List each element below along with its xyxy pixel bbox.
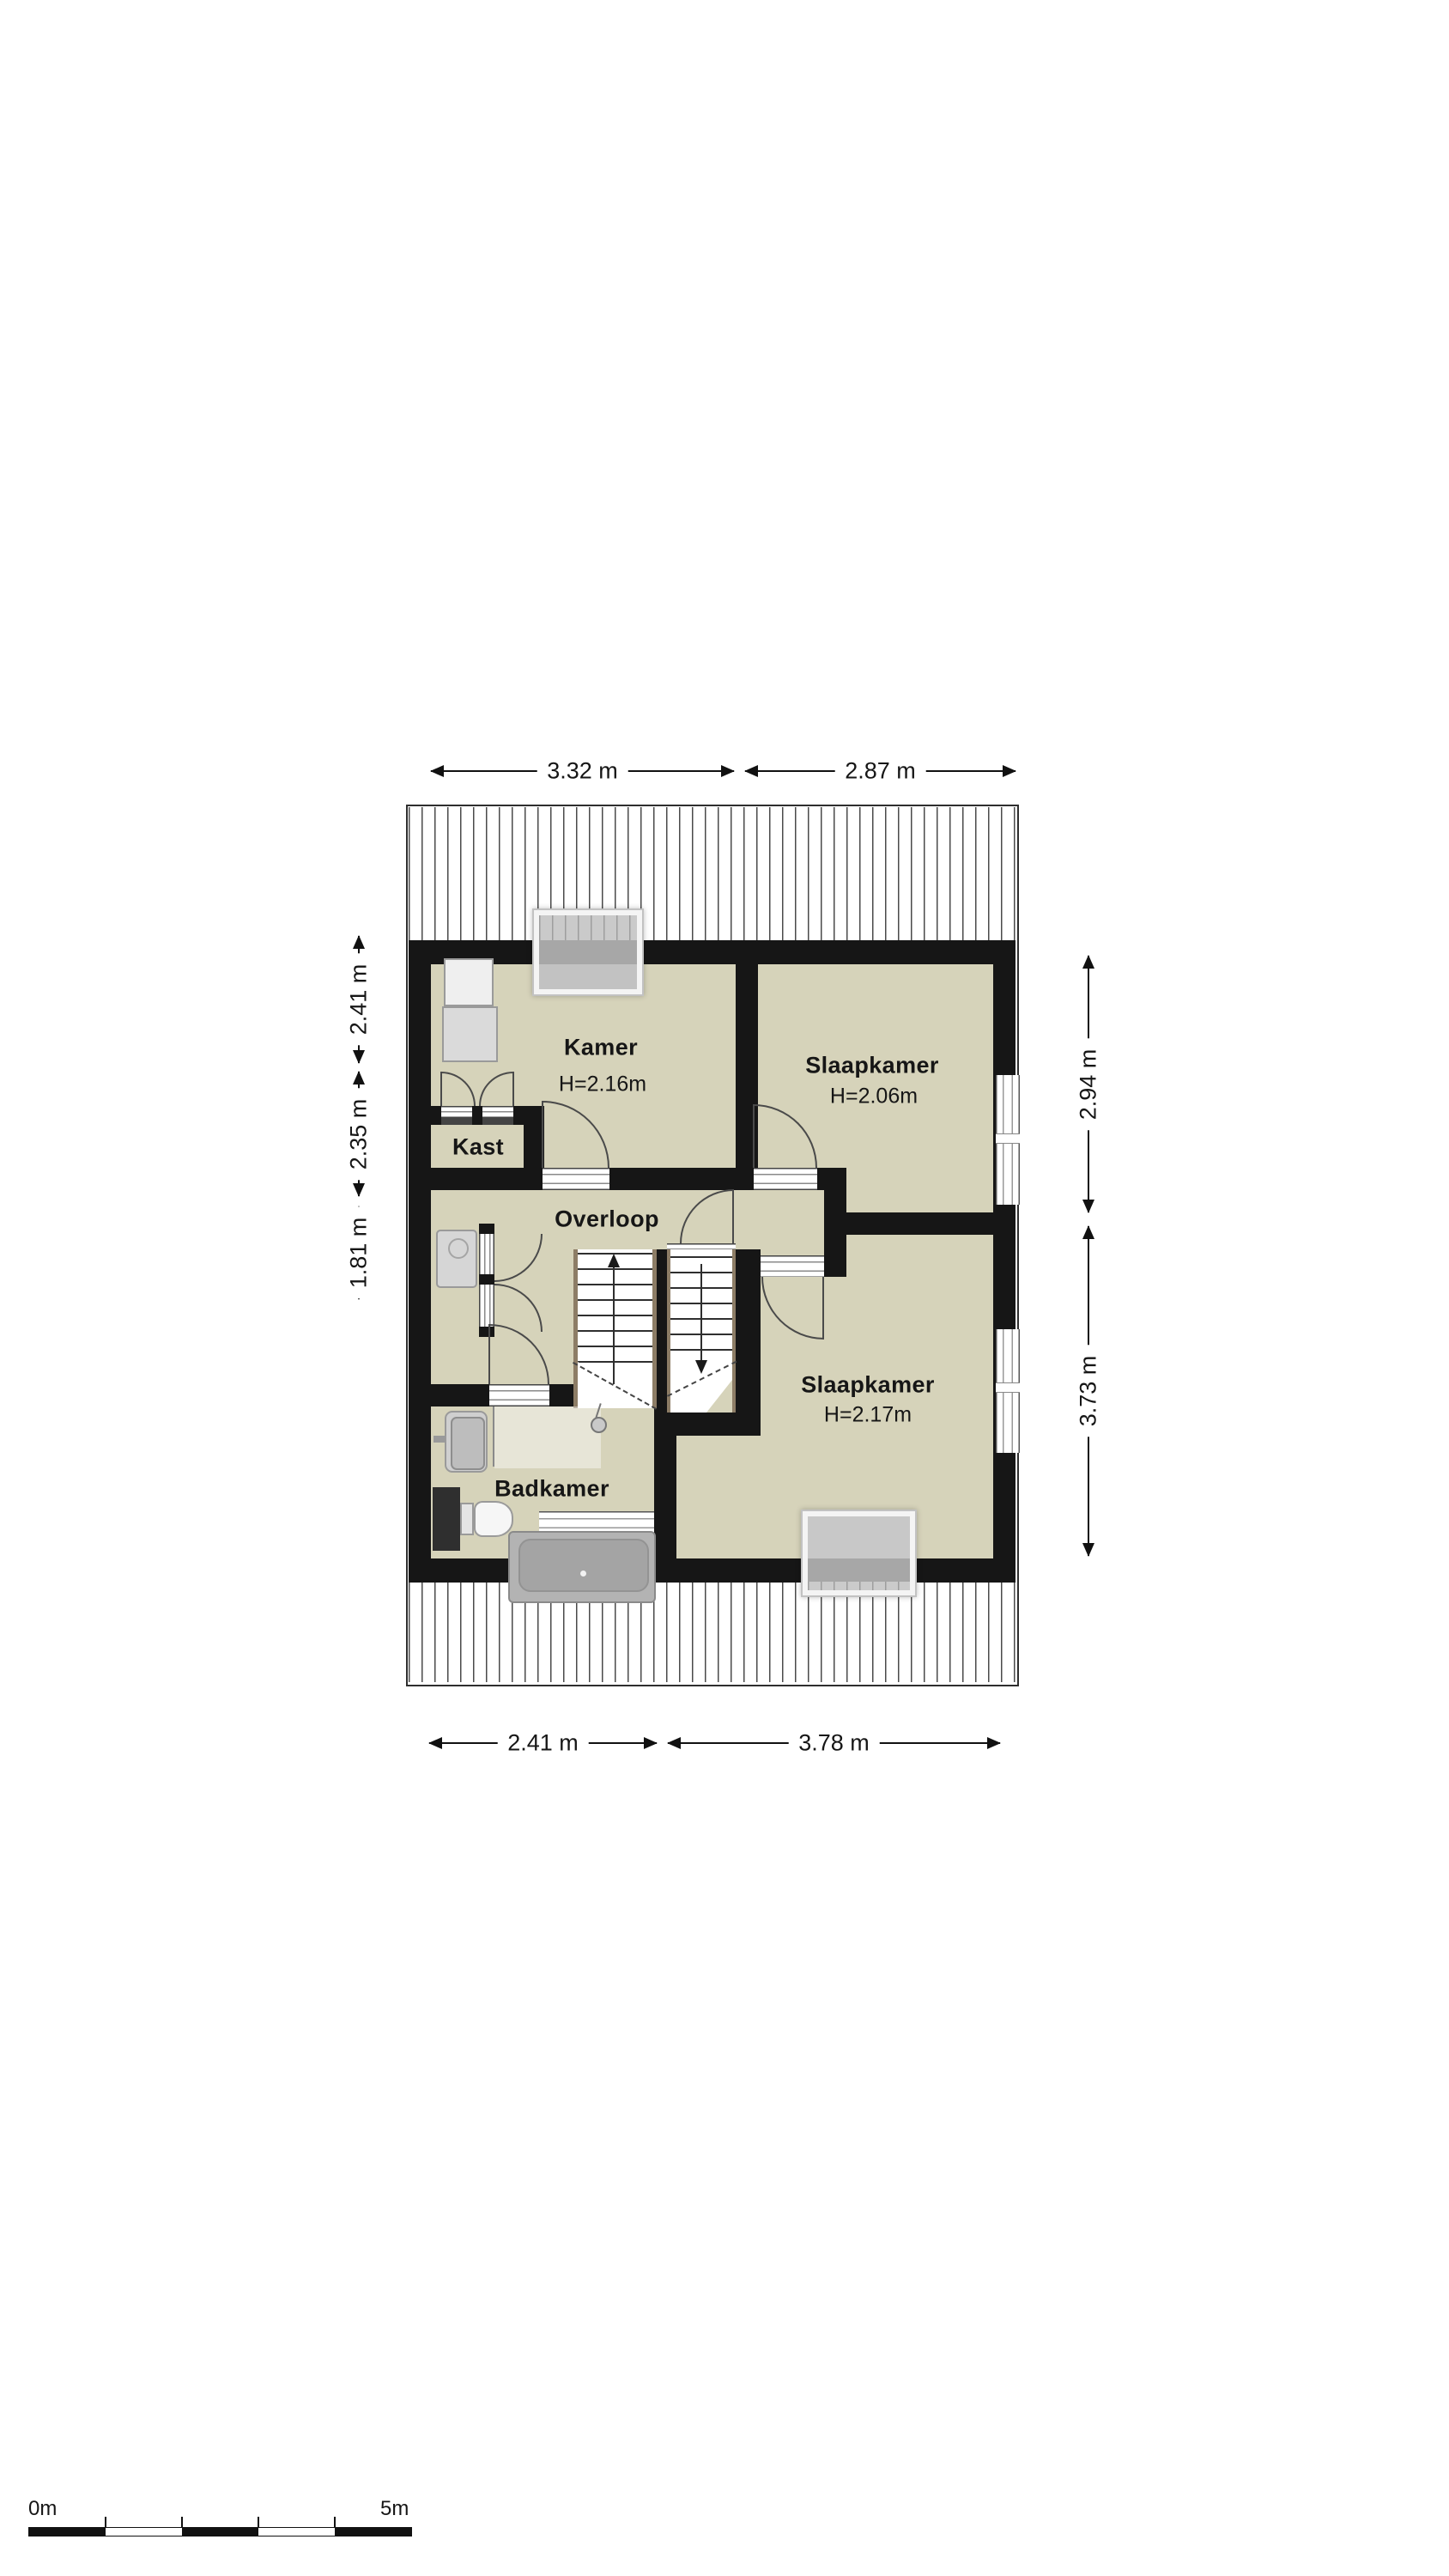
closet-post-top [479,1224,494,1234]
wall-overloop-badkamer-a [431,1384,489,1406]
dim-left-1: 2.41 m [358,936,360,1063]
wall-kamer-overloop-b [609,1168,754,1190]
scale-seg-1 [29,2528,106,2536]
scale-seg-2 [106,2528,182,2536]
roof-hatch-bottom [409,1583,1016,1682]
window-transom-1 [996,1133,1020,1144]
dim-left-3-label: 1.81 m [346,1207,373,1299]
stairs-down-line [700,1264,702,1360]
skylight-kamer-glass-top [539,915,637,940]
toilet-bowl [474,1501,513,1537]
wall-left [409,940,431,1583]
dim-right-1-label: 2.94 m [1076,1038,1102,1130]
stairs-up-arrow-icon [608,1254,620,1267]
stairs-down-arrow-icon [695,1360,707,1374]
door-leaf-slaapkamer-onder [822,1277,824,1340]
scale-tick-4 [334,2517,336,2527]
wall-top [409,940,1016,964]
room-label-kast: Kast [452,1134,504,1161]
stairs-down-landing [706,1380,732,1413]
scale-bar-label-end: 5m [380,2497,409,2521]
skylight-slaapkamer-glass-top [808,1516,910,1558]
door-sill-slaapkamer-onder [761,1255,824,1277]
room-label-overloop: Overloop [555,1206,659,1233]
door-sill-kamer [543,1168,609,1190]
sink-tap-icon [433,1436,446,1443]
dim-right-2: 3.73 m [1088,1226,1089,1556]
arrow-down-icon [1082,1543,1094,1557]
dim-right-1: 2.94 m [1088,956,1089,1212]
arrow-down-icon [353,1183,365,1197]
scale-tick-3 [258,2517,259,2527]
wall-bottom [409,1558,1016,1583]
dim-top-left-label: 3.32 m [537,758,628,785]
kast-door-post-left [431,1106,441,1125]
shower-head-icon [591,1417,607,1433]
dim-bottom-right-label: 3.78 m [788,1730,880,1757]
skylight-slaapkamer [801,1510,917,1597]
shower-area [494,1406,601,1468]
wall-slaapkamer-boven-onder [824,1212,1016,1235]
scale-tick-2 [181,2517,183,2527]
floorplan-page: Kamer H=2.16m Slaapkamer H=2.06m Kast Ov… [0,0,1449,2576]
arrow-left-icon [744,765,758,777]
scale-tick-1 [105,2517,106,2527]
bathtub-basin [518,1539,649,1592]
arrow-right-icon [721,765,735,777]
scale-bar [28,2527,412,2537]
arrow-up-icon [1082,1225,1094,1239]
dim-bottom-left: 2.41 m [429,1742,657,1744]
door-leaf-stairs [732,1189,734,1243]
kast-door-leaf-right [512,1072,514,1106]
kast-door-leaf-left [440,1072,442,1106]
dim-left-2-label: 2.35 m [346,1088,373,1180]
door-sill-slaapkamer-boven [754,1168,817,1190]
dim-bottom-right: 3.78 m [668,1742,1000,1744]
shower-screen [493,1406,494,1467]
arrow-right-icon [644,1737,658,1749]
arrow-up-icon [1082,955,1094,969]
scale-seg-5 [335,2528,411,2536]
room-height-slaapkamer-onder: H=2.17m [824,1403,912,1428]
dim-left-3: 1.81 m [358,1206,360,1299]
skylight-kamer-glass-mid [539,940,637,964]
arrow-down-icon [353,1050,365,1064]
wall-between-flights [657,1249,667,1388]
room-label-slaapkamer-onder: Slaapkamer [801,1372,935,1399]
arrow-left-icon [430,765,444,777]
wall-right [993,940,1016,1583]
roof-hatch-top [409,807,1016,940]
dim-top-right-label: 2.87 m [834,758,926,785]
window-transom-2 [996,1382,1020,1393]
wall-stairs-right [736,1249,761,1436]
door-leaf-kamer [542,1101,543,1168]
skylight-kamer-glass-bottom [539,964,637,989]
dim-top-right: 2.87 m [745,770,1016,772]
scale-seg-4 [258,2528,335,2536]
dim-right-2-label: 3.73 m [1076,1346,1102,1437]
room-label-badkamer: Badkamer [494,1476,609,1503]
kast-door-post-right [513,1106,524,1125]
arrow-up-icon [353,935,365,949]
room-label-kamer: Kamer [564,1035,638,1061]
dim-top-left: 3.32 m [431,770,734,772]
stairs-up-line [613,1267,615,1384]
door-leaf-slaapkamer-boven [753,1104,755,1168]
sink-basin [451,1417,485,1470]
bathroom-panel [433,1487,460,1551]
scale-bar-label-start: 0m [28,2497,57,2521]
skylight-slaapkamer-glass-bottom [808,1582,910,1590]
bathroom-sink [445,1411,488,1473]
wall-under-stairs [654,1413,758,1436]
door-leaf-badkamer [488,1324,490,1384]
wardrobe-bottom [442,1006,498,1062]
dim-bottom-left-label: 2.41 m [497,1730,589,1757]
room-height-kamer: H=2.16m [559,1072,646,1097]
dim-left-2: 2.35 m [358,1072,360,1196]
stairs-up-treads [578,1253,652,1369]
arrow-right-icon [1003,765,1016,777]
closet-post-mid [479,1274,494,1285]
dim-left-1-label: 2.41 m [346,954,373,1046]
door-sill-badkamer [489,1384,549,1406]
arrow-left-icon [428,1737,442,1749]
skylight-slaapkamer-glass-mid [808,1558,910,1582]
wardrobe-top [444,958,494,1006]
room-label-slaapkamer-boven: Slaapkamer [805,1053,939,1079]
arrow-right-icon [987,1737,1001,1749]
bathtub [508,1531,656,1603]
arrow-left-icon [667,1737,681,1749]
skylight-kamer [532,908,644,996]
arrow-down-icon [1082,1200,1094,1213]
scale-seg-3 [182,2528,258,2536]
kast-door-post-mid [472,1106,482,1125]
bathtub-drain-icon [580,1571,586,1577]
closet-appliance [436,1230,477,1288]
room-height-slaapkamer-boven: H=2.06m [830,1084,918,1109]
toilet-tank [460,1503,474,1535]
closet-appliance-dial-icon [448,1238,469,1259]
arrow-up-icon [353,1071,365,1084]
